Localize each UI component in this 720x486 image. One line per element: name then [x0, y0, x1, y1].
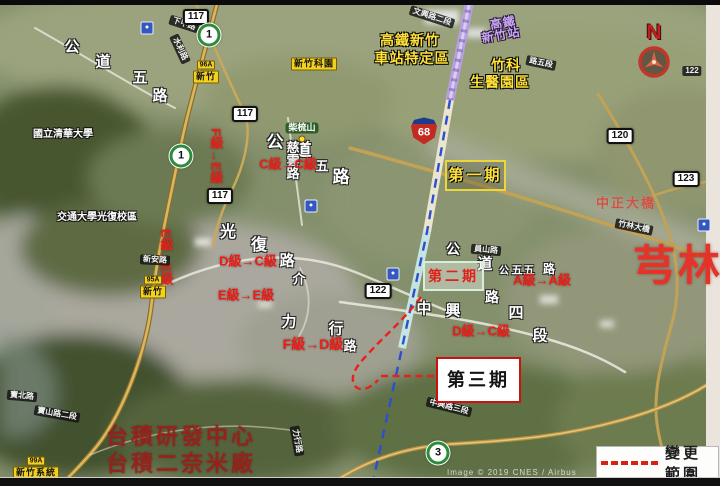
route-shield-1: 1: [198, 24, 221, 47]
area-label: 中正大橋: [596, 197, 656, 210]
road-name-label: 道: [95, 55, 110, 70]
grade-change-label: F級→E級: [210, 128, 223, 184]
road-badge: 力行路: [289, 425, 304, 456]
poi-label: 交通大學光復校區: [57, 213, 137, 223]
road-name-label: 五: [315, 160, 328, 173]
route-shield-117: 117: [232, 106, 258, 122]
legend-box: 變更範圍: [596, 446, 719, 479]
map-credit: Image © 2019 CNES / Airbus: [447, 468, 577, 477]
road-badge: 員山路: [471, 244, 502, 257]
compass-rose: N: [636, 22, 672, 82]
grade-change-label: F級→D級: [283, 337, 344, 351]
area-label: 新竹站: [481, 26, 522, 45]
road-name-label: 公: [267, 134, 284, 151]
map-label-layer: 高鐵新竹車站特定區竹科生醫園區高鐵新竹站芎林中正大橋台積研發中心台積二奈米廠國立…: [0, 0, 720, 486]
poi-label: 柴梳山: [285, 123, 318, 134]
road-name-label: 公: [499, 267, 509, 277]
area-label: 車站特定區: [375, 51, 450, 65]
road-name-label: 光: [220, 225, 236, 241]
route-shield-123: 123: [673, 171, 700, 187]
poi-label: 國立清華大學: [33, 130, 93, 140]
area-label: 高鐵新竹: [380, 33, 440, 47]
route-shield-122: 122: [365, 283, 392, 299]
interchange-exit-badge: 96A新竹: [193, 61, 219, 84]
road-badge: 文興路二段: [409, 5, 456, 29]
route-shield-117: 117: [183, 9, 209, 25]
legend-dash-line: [601, 461, 658, 465]
interchange-icon: [387, 268, 400, 281]
exit-number: 96A: [197, 61, 216, 70]
grade-change-label: D級→C級: [219, 255, 277, 268]
road-badge: 寶山路二段: [33, 405, 80, 423]
exit-number: 99A: [27, 457, 46, 466]
route-shield-120: 120: [607, 128, 634, 144]
area-label: 芎林: [633, 245, 720, 287]
exit-name: 新竹科園: [291, 58, 337, 71]
grade-change-label: C級→C級: [259, 158, 317, 171]
road-name-label: 段: [532, 329, 547, 344]
road-name-label: 路: [343, 340, 356, 353]
top-border-bar: [0, 0, 720, 5]
road-badge: 寶北路: [7, 390, 38, 403]
road-name-label: 行: [328, 322, 343, 337]
interchange-exit-badge: 新竹科園: [291, 58, 337, 71]
phase-1-box: 第一期: [445, 160, 506, 191]
exit-name: 新竹: [140, 286, 166, 299]
grade-change-label: A級→A級: [513, 274, 571, 287]
road-name-label: 中: [416, 302, 431, 317]
grade-change-label: E級→E級: [218, 289, 274, 302]
road-name-label: 路: [485, 290, 499, 304]
route-shield-3: 3: [427, 442, 450, 465]
road-name-label: 路: [333, 169, 350, 186]
bottom-border-bar: [0, 477, 720, 486]
road-badge: 竹林大橋: [614, 218, 653, 236]
road-name-label: 路: [152, 89, 167, 104]
road-name-label: 興: [445, 304, 460, 319]
exit-name: 新竹: [193, 71, 219, 84]
road-name-label: 公: [64, 40, 79, 55]
road-name-label: 五: [132, 71, 147, 86]
compass-star-icon: [636, 43, 672, 81]
grade-change-label: D級→C級: [452, 325, 510, 338]
road-name-label: 路: [279, 254, 294, 269]
route-shield-117: 117: [207, 188, 233, 204]
interchange-icon: [698, 219, 711, 232]
interchange-icon: [305, 200, 318, 213]
exit-number: 95A: [144, 276, 163, 285]
route-shield-68: 68: [411, 118, 437, 145]
poi-dot-icon: [299, 136, 306, 143]
area-label: 生醫園區: [470, 75, 530, 89]
road-name-label: 復: [251, 238, 267, 254]
road-name-label: 力: [281, 315, 296, 330]
road-name-label: 公: [446, 242, 460, 256]
interchange-icon: [141, 22, 154, 35]
phase-2-box: 第二期: [423, 261, 484, 291]
area-label: 台積二奈米廠: [106, 453, 256, 475]
area-label: 台積研發中心: [106, 426, 256, 448]
road-name-label: 介: [292, 273, 305, 286]
road-badge: 新安路: [140, 254, 170, 266]
route-shield-1: 1: [170, 145, 193, 168]
map-screenshot: 高鐵新竹車站特定區竹科生醫園區高鐵新竹站芎林中正大橋台積研發中心台積二奈米廠國立…: [0, 0, 720, 486]
road-name-label: 四: [508, 306, 523, 321]
phase-3-box: 第三期: [436, 357, 521, 403]
road-badge: 路五段: [525, 55, 556, 71]
road-badge: 水利路: [169, 33, 191, 64]
area-label: 竹科: [491, 58, 521, 72]
interchange-exit-badge: 95A新竹: [140, 276, 166, 299]
compass-north-label: N: [636, 22, 672, 43]
road-badge: 122: [682, 66, 701, 76]
